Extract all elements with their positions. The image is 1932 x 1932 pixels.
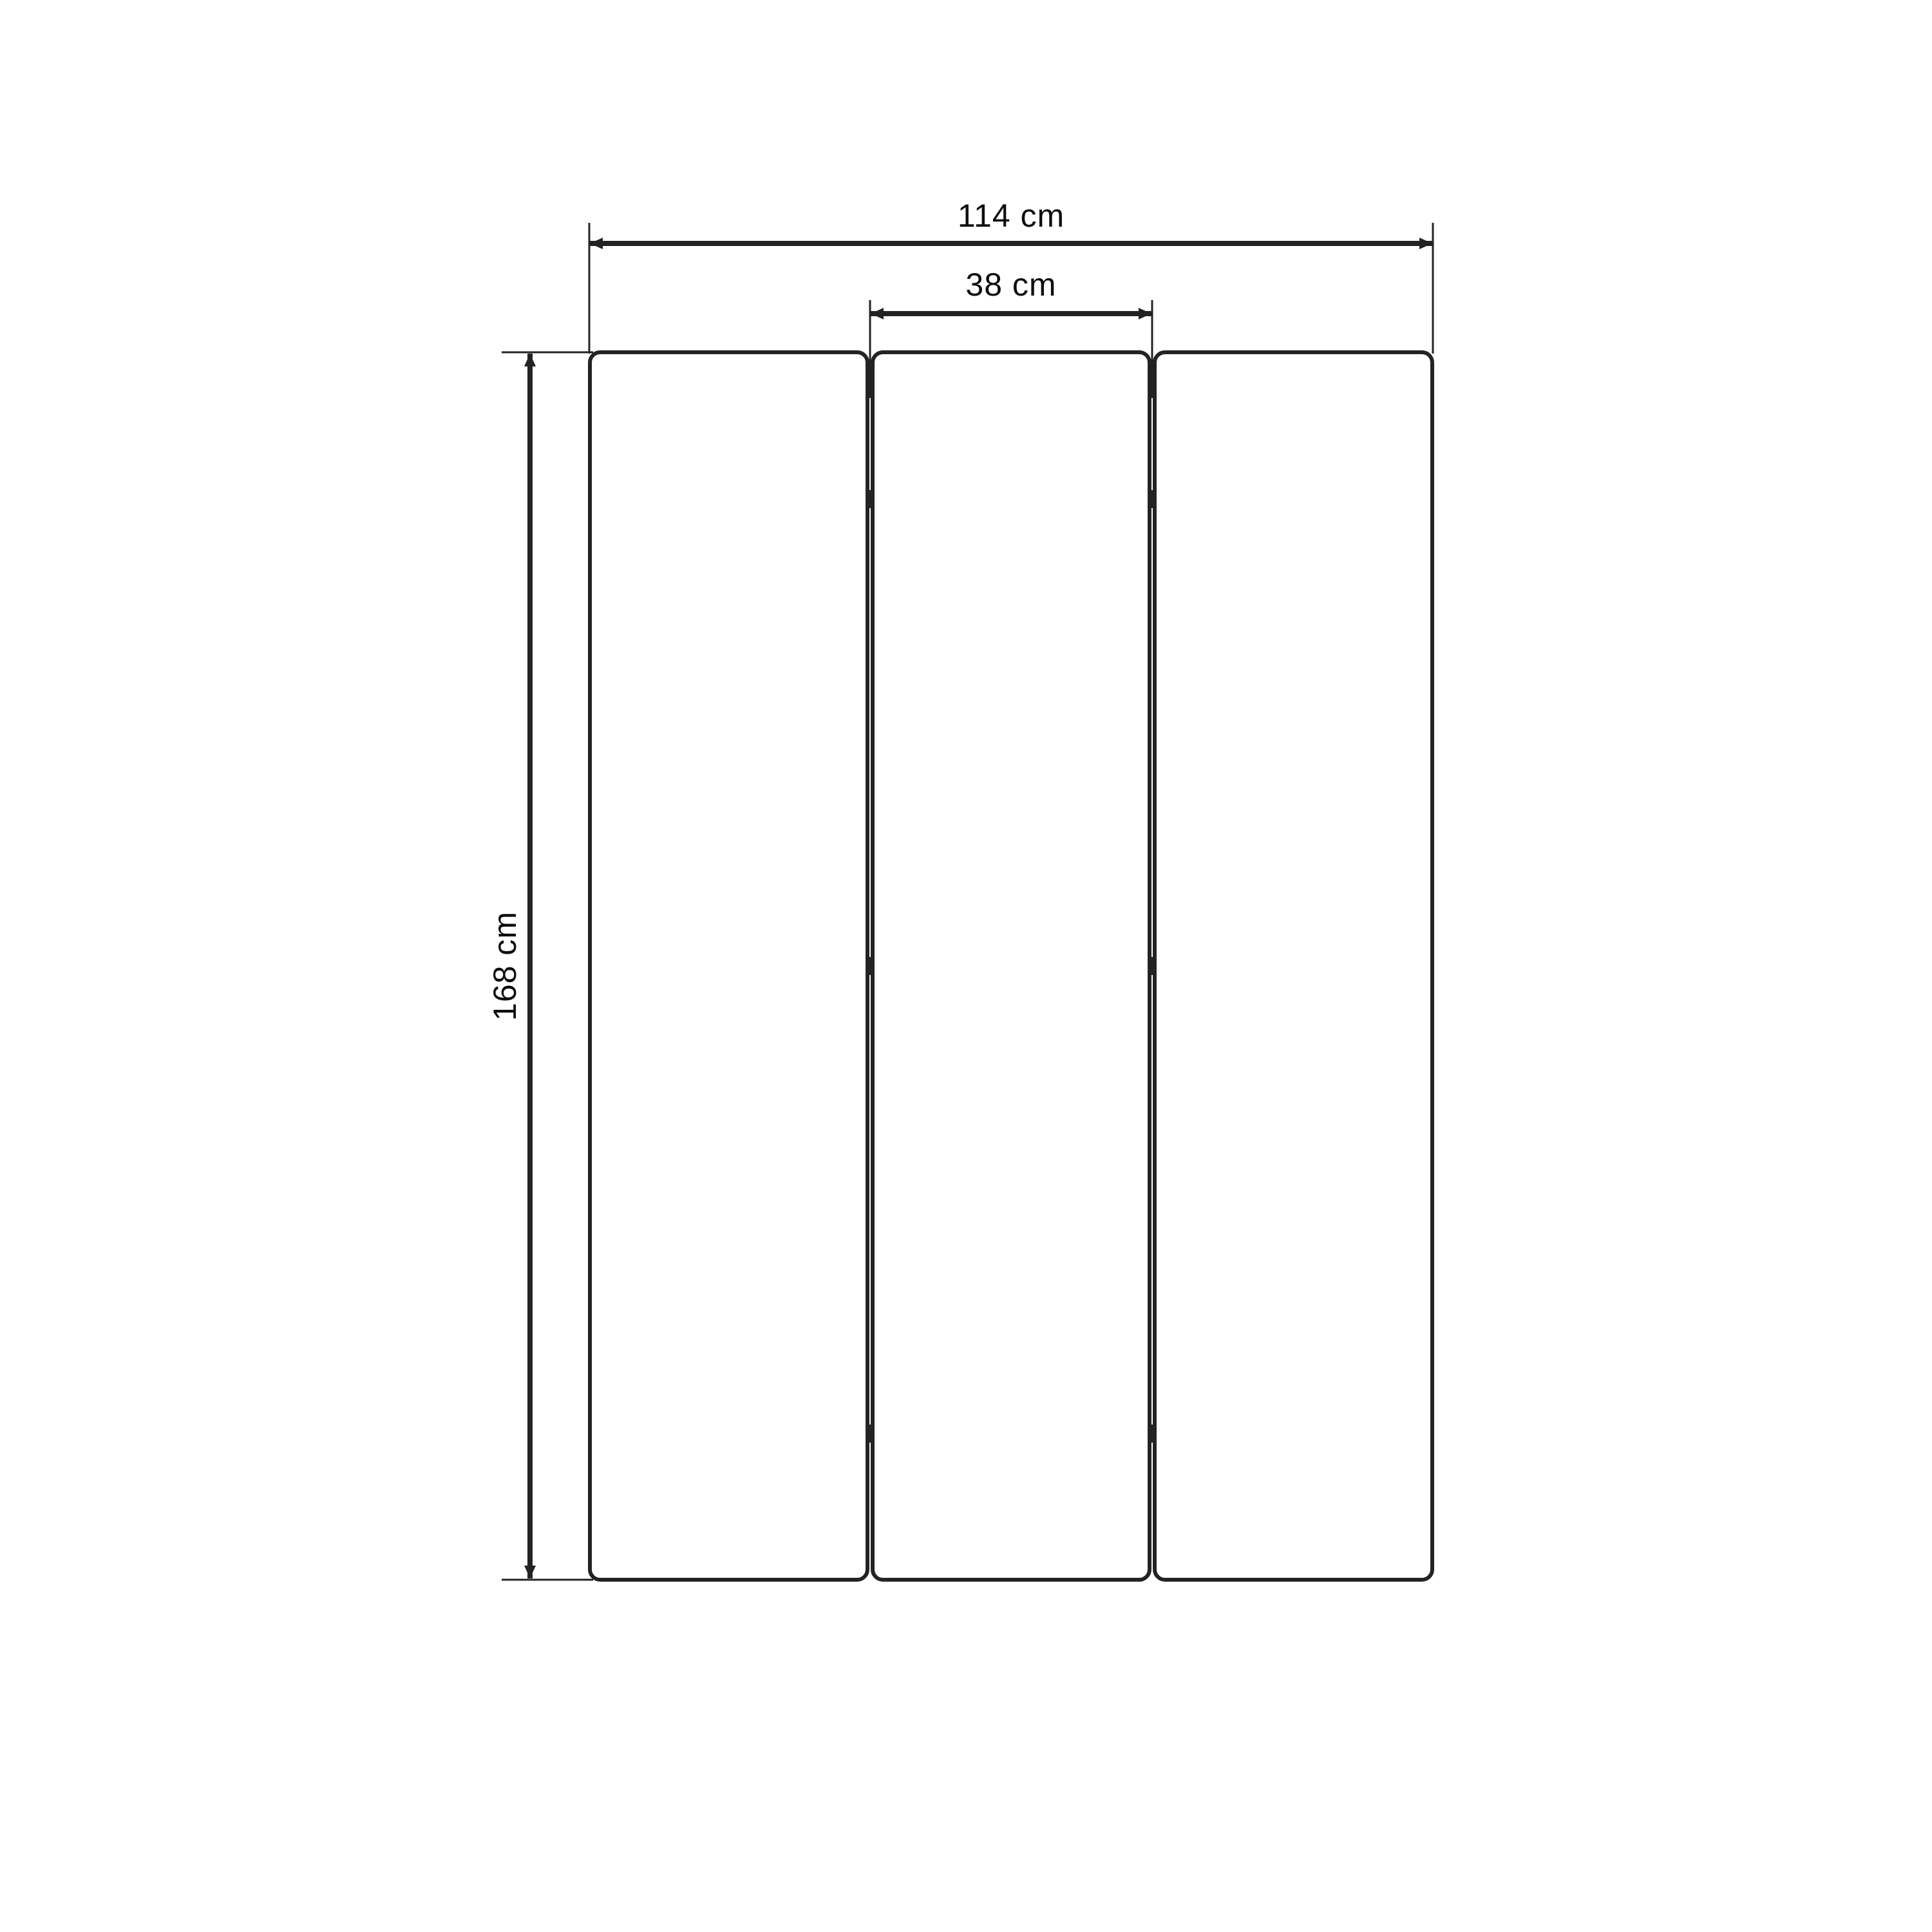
panel-right: [1155, 352, 1432, 1580]
hinge-left-middle: [866, 957, 875, 975]
panel-width-label: 38 cm: [965, 267, 1056, 303]
height-label: 168 cm: [487, 911, 523, 1021]
panel-group: [590, 352, 1432, 1580]
total-width-label: 114 cm: [958, 198, 1065, 234]
hinge-right-middle: [1148, 957, 1157, 975]
panel-left: [590, 352, 867, 1580]
hinge-right-bottom: [1148, 1425, 1157, 1443]
hinge-left-top: [866, 490, 875, 508]
panel-middle: [873, 352, 1150, 1580]
hinge-right-top: [1148, 490, 1157, 508]
hinge-left-bottom: [866, 1425, 875, 1443]
dimension-diagram: 114 cm 38 cm 168 cm: [0, 0, 1932, 1932]
drawing-canvas: 114 cm 38 cm 168 cm: [0, 0, 1932, 1932]
